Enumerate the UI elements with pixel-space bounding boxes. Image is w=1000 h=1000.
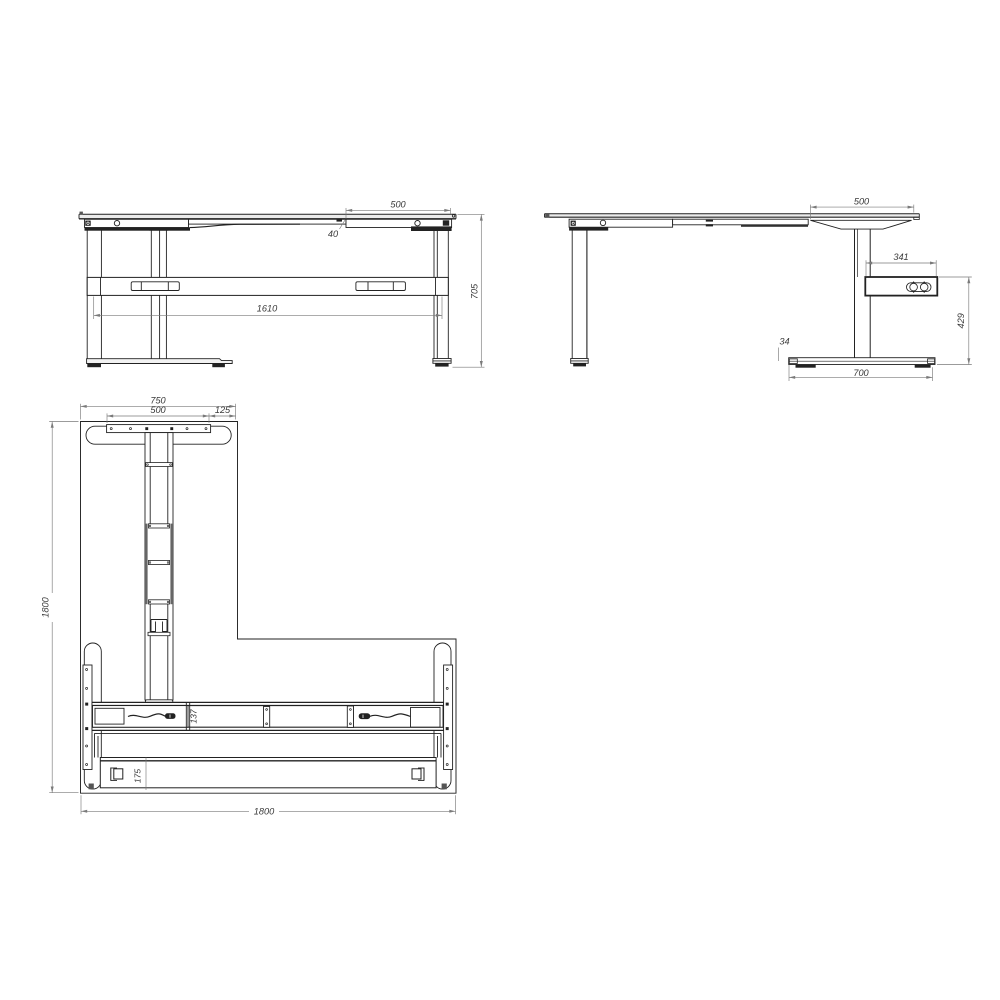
svg-text:700: 700 bbox=[853, 368, 869, 378]
svg-text:429: 429 bbox=[956, 313, 966, 328]
svg-text:125: 125 bbox=[215, 405, 231, 415]
svg-text:1800: 1800 bbox=[254, 806, 275, 816]
svg-text:137: 137 bbox=[189, 708, 199, 724]
svg-text:705: 705 bbox=[470, 283, 480, 299]
svg-text:500: 500 bbox=[390, 200, 406, 210]
svg-text:1800: 1800 bbox=[41, 596, 51, 617]
svg-text:750: 750 bbox=[150, 396, 166, 406]
svg-text:500: 500 bbox=[854, 196, 870, 206]
svg-text:500: 500 bbox=[150, 405, 166, 415]
svg-text:40: 40 bbox=[328, 229, 339, 239]
svg-text:1610: 1610 bbox=[257, 304, 278, 314]
svg-text:175: 175 bbox=[133, 769, 143, 784]
svg-text:341: 341 bbox=[893, 252, 908, 262]
svg-text:34: 34 bbox=[779, 337, 789, 347]
